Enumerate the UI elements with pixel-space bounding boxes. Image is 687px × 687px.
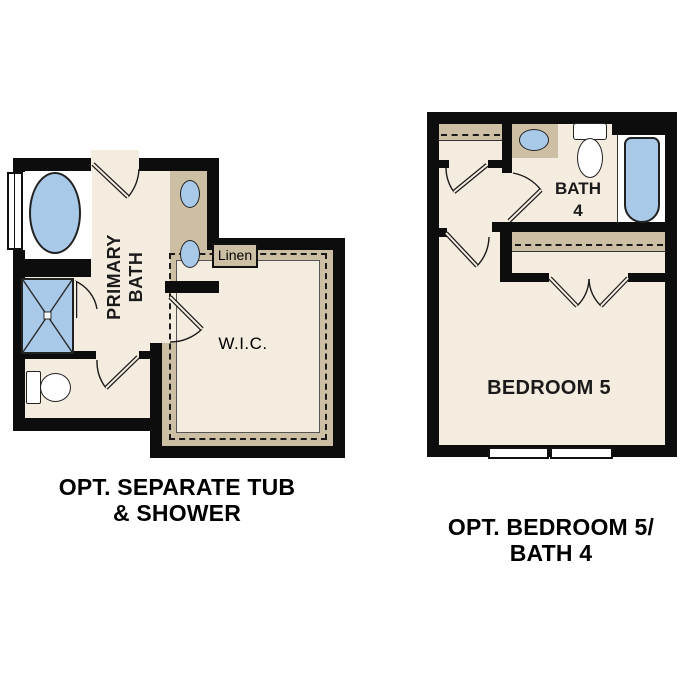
window bbox=[488, 447, 549, 459]
wall bbox=[500, 273, 549, 282]
hall-closet-shelf bbox=[439, 124, 502, 140]
wall bbox=[150, 343, 162, 458]
closet-shelf-edge bbox=[439, 140, 502, 141]
primary-bath-label-line2: BATH bbox=[125, 207, 147, 347]
primary-bath-label: PRIMARY BATH bbox=[103, 207, 153, 347]
tub bbox=[29, 172, 81, 254]
bedroom5-label: BEDROOM 5 bbox=[449, 377, 649, 400]
toilet-bowl bbox=[40, 373, 71, 402]
floor-plan-canvas: PRIMARY BATH W.I.C. Linen BATH 4 BEDROOM… bbox=[0, 0, 687, 687]
wall bbox=[13, 158, 25, 172]
wall bbox=[488, 160, 502, 168]
wall bbox=[427, 228, 447, 237]
wall bbox=[165, 281, 219, 293]
right-plan-caption-line1: OPT. BEDROOM 5/ bbox=[431, 514, 671, 540]
bath4-label-line1: BATH bbox=[528, 178, 628, 200]
wall bbox=[13, 418, 162, 431]
toilet-tank bbox=[26, 371, 41, 404]
sink bbox=[180, 180, 200, 208]
bath4-label: BATH 4 bbox=[528, 178, 628, 222]
entry-recess-floor bbox=[91, 150, 139, 171]
left-plan-caption: OPT. SEPARATE TUB & SHOWER bbox=[17, 474, 337, 526]
closet-rod-dashed-line bbox=[515, 244, 663, 246]
sink bbox=[180, 240, 200, 268]
wall bbox=[665, 112, 677, 457]
tub bbox=[624, 137, 660, 223]
wall bbox=[13, 259, 91, 277]
wall bbox=[427, 112, 677, 124]
wall bbox=[439, 160, 449, 168]
linen-label: Linen bbox=[212, 247, 258, 263]
wall bbox=[628, 273, 665, 282]
wall bbox=[502, 112, 512, 173]
right-plan-caption-line2: BATH 4 bbox=[431, 540, 671, 566]
window bbox=[550, 447, 613, 459]
window bbox=[7, 172, 23, 250]
bath4-label-line2: 4 bbox=[528, 200, 628, 222]
closet-shelf-edge bbox=[512, 251, 665, 252]
wall bbox=[207, 158, 219, 248]
window-mullion bbox=[14, 174, 15, 248]
bedroom-closet-shelf bbox=[512, 232, 665, 251]
wic-label: W.I.C. bbox=[193, 334, 293, 354]
left-plan-caption-line1: OPT. SEPARATE TUB bbox=[17, 474, 337, 500]
toilet-bowl bbox=[577, 138, 603, 178]
sink bbox=[519, 129, 549, 151]
wall bbox=[333, 238, 345, 458]
right-plan-caption: OPT. BEDROOM 5/ BATH 4 bbox=[431, 514, 671, 566]
wall bbox=[427, 112, 439, 457]
closet-rod-dashed-line bbox=[441, 134, 500, 136]
wall bbox=[492, 222, 677, 232]
shower bbox=[21, 278, 74, 354]
wall bbox=[150, 446, 345, 458]
left-plan-caption-line2: & SHOWER bbox=[17, 500, 337, 526]
primary-bath-label-line1: PRIMARY bbox=[103, 207, 125, 347]
